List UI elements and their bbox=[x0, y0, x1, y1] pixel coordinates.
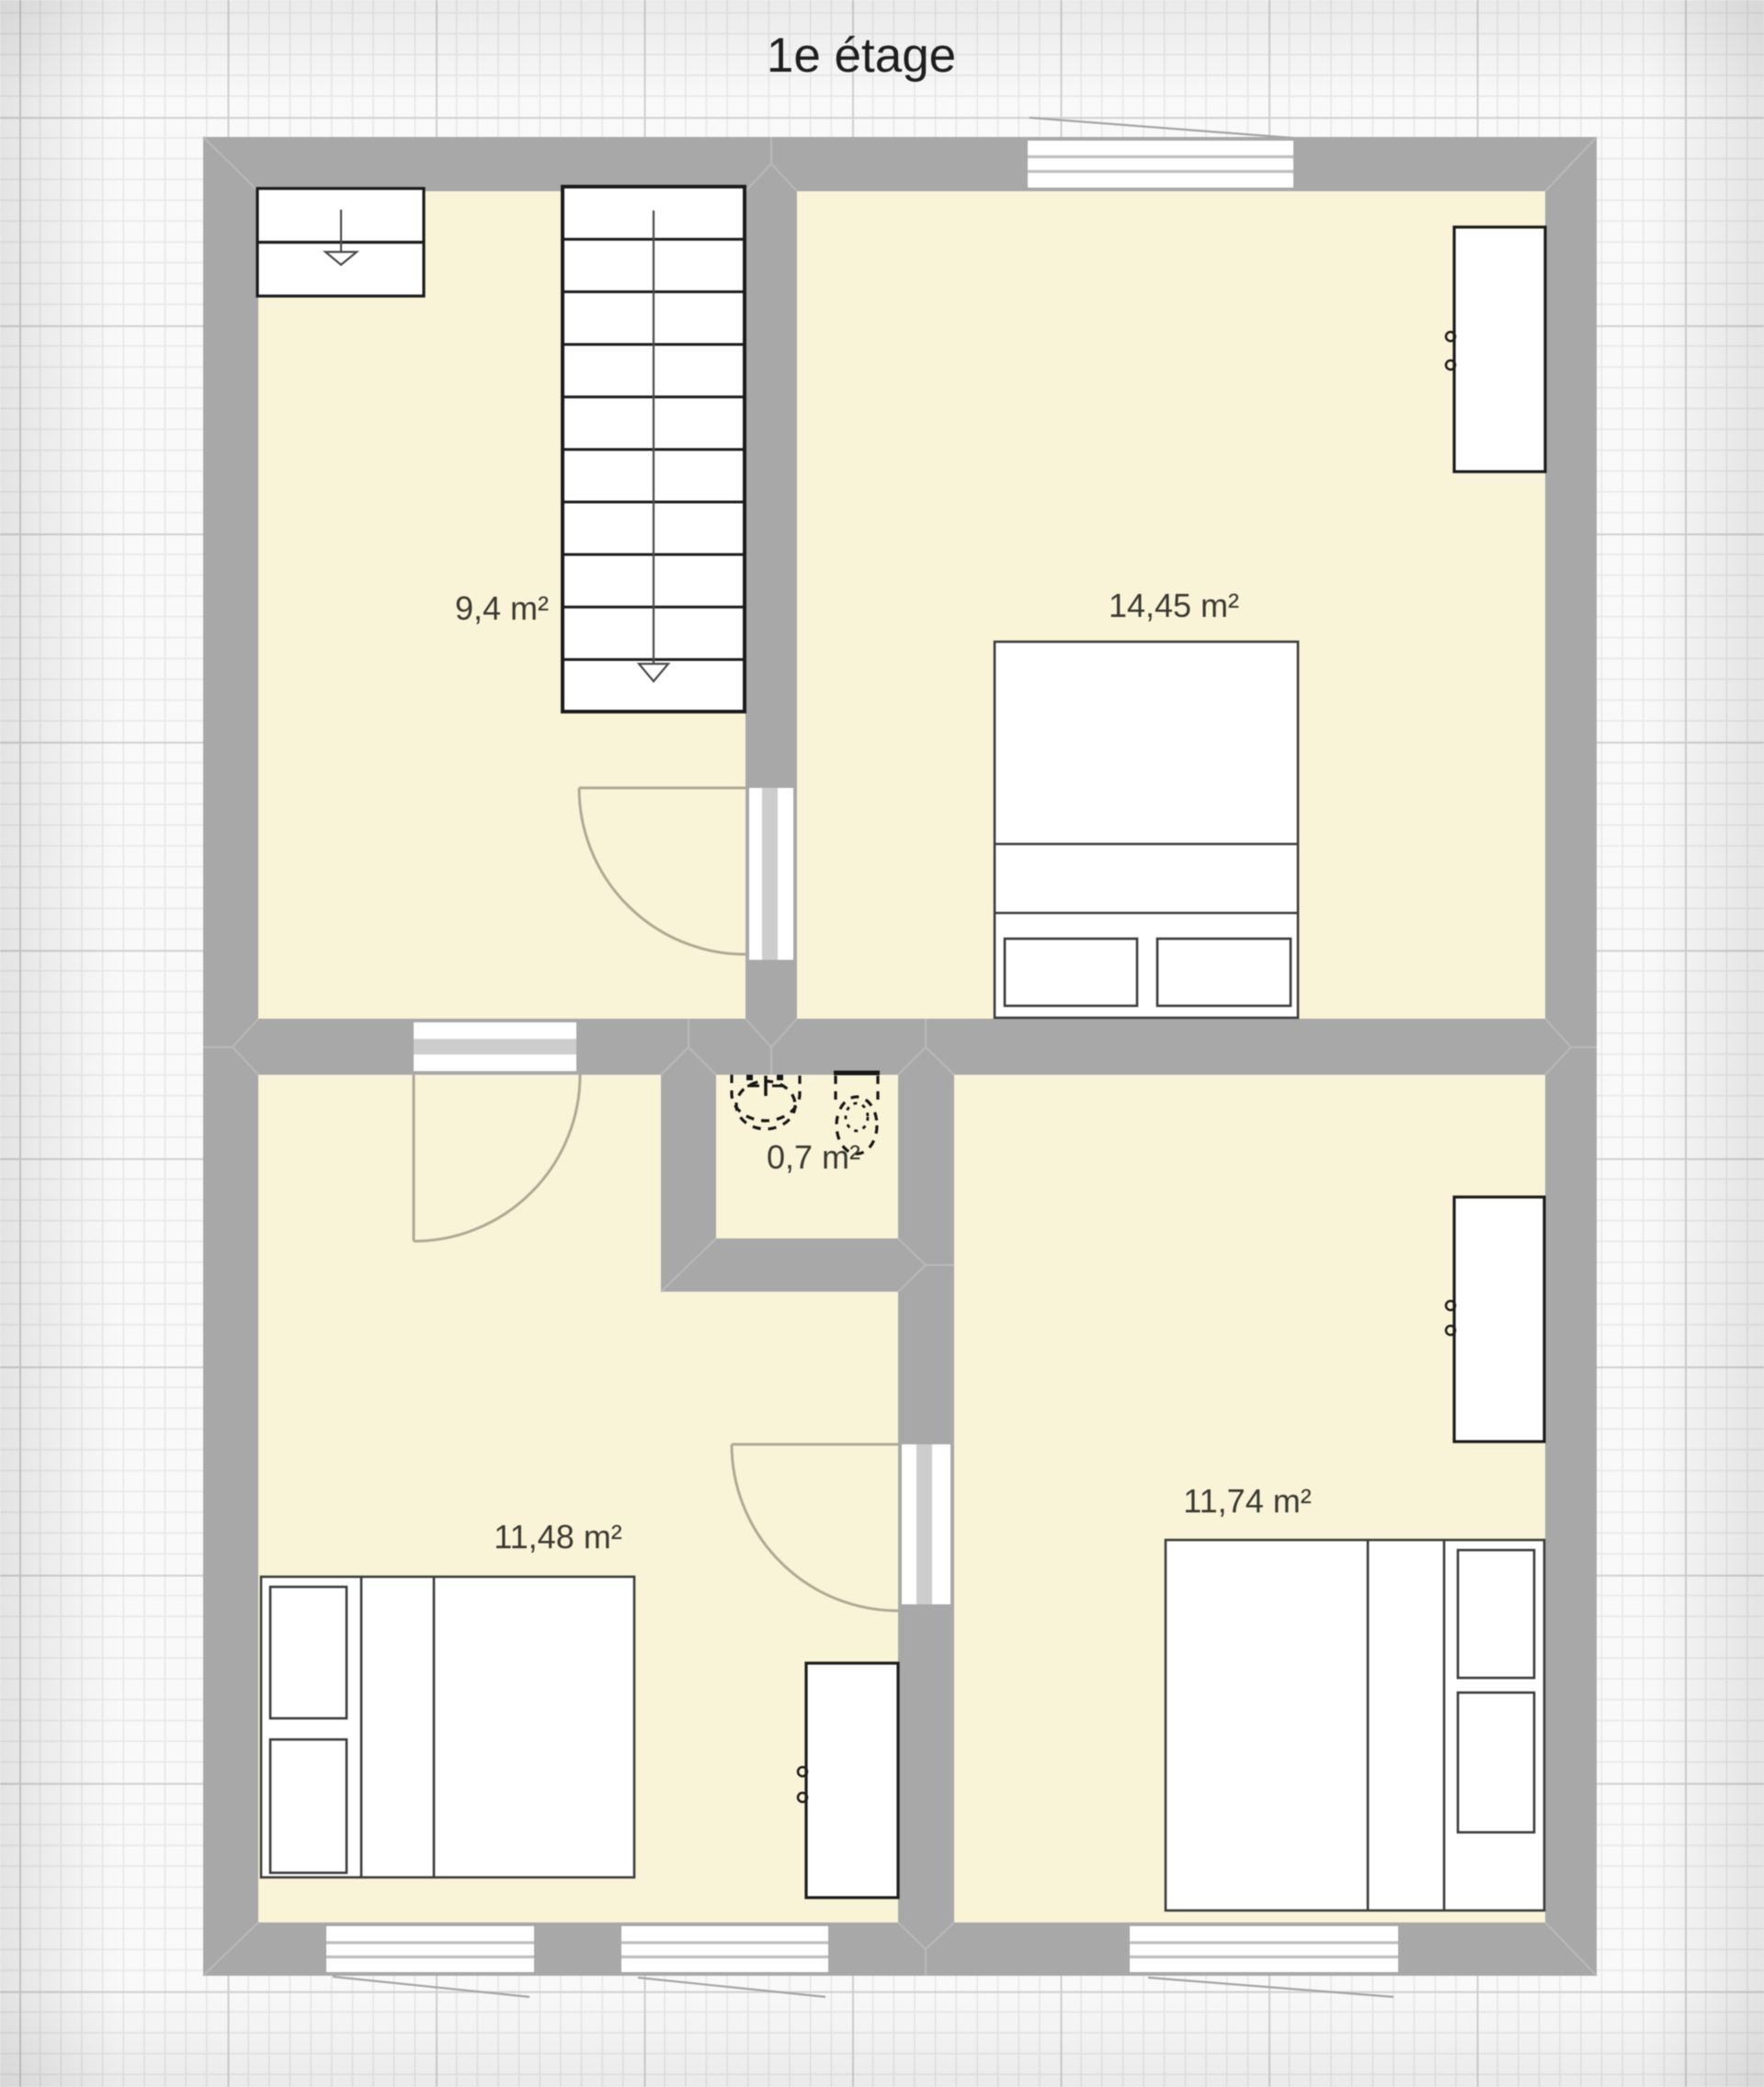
svg-text:11,48 m²: 11,48 m² bbox=[494, 1518, 621, 1556]
svg-text:11,74 m²: 11,74 m² bbox=[1183, 1482, 1311, 1520]
svg-text:0,7 m²: 0,7 m² bbox=[767, 1138, 860, 1176]
svg-text:9,4 m²: 9,4 m² bbox=[455, 589, 549, 627]
svg-text:14,45 m²: 14,45 m² bbox=[1109, 587, 1239, 624]
